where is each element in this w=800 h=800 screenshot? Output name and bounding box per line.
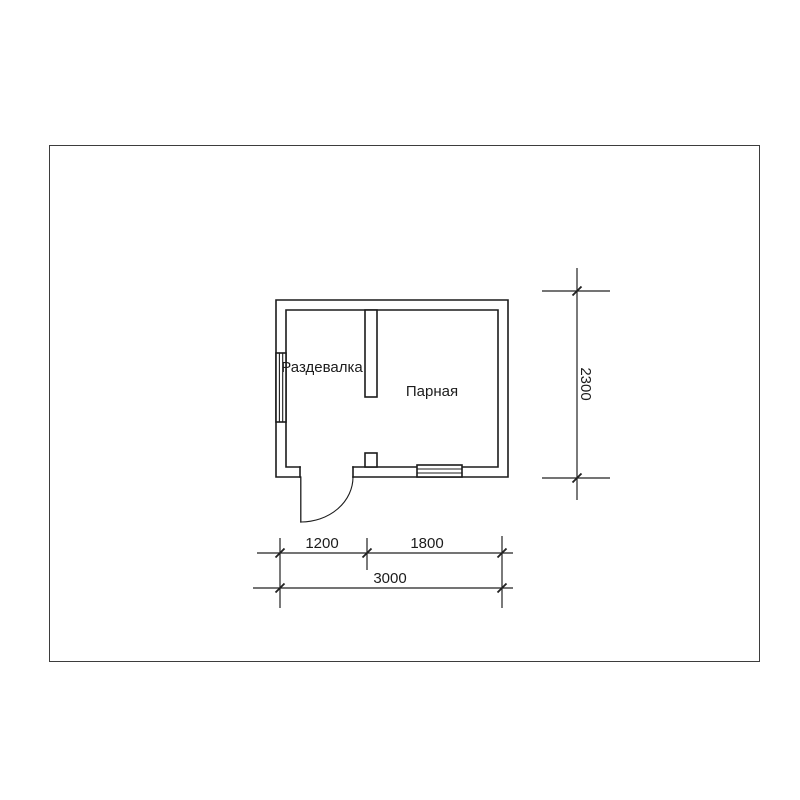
partition-wall-stub [365,453,377,467]
room-label-steam: Парная [406,383,458,400]
outer-wall-line [276,300,508,477]
dim-label-1800: 1800 [410,535,443,552]
drawing-canvas: Раздевалка Парная 1200 1800 3000 2300 [0,0,800,800]
floor-plan: Раздевалка Парная 1200 1800 3000 2300 [0,0,800,800]
room-label-dressing: Раздевалка [281,359,363,376]
window-bottom [417,465,462,477]
dim-label-1200: 1200 [305,535,338,552]
building-walls [276,300,508,522]
entrance-door [301,477,353,522]
dim-label-2300: 2300 [577,367,594,400]
dimension-lines [253,268,610,608]
partition-wall-upper [365,310,377,397]
inner-wall-line [286,310,498,467]
dim-label-3000: 3000 [373,570,406,587]
door-swing-arc [301,477,353,522]
window-bottom-frame [417,465,462,477]
